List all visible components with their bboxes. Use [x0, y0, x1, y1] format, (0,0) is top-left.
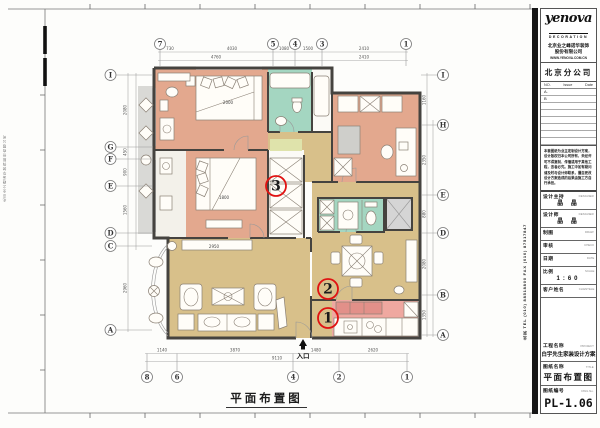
vanity-counter — [338, 202, 358, 229]
grid-bubble-label: A — [107, 325, 114, 334]
disclaimer: 本套图纸为业主定制设计方案，设计版权归本公司所有，未经许可不得复制、传播或用于其… — [541, 146, 596, 192]
chair — [331, 252, 340, 264]
dimension-text: 2410 — [359, 55, 370, 60]
field-label: 设计主持 — [543, 193, 564, 200]
bathtub — [270, 73, 310, 88]
field-label: 日期 — [543, 255, 554, 262]
grid-bubble-label: B — [440, 290, 446, 299]
field-project: 工程名称 PROJECT 白宇先生家装设计方案 — [541, 341, 596, 362]
dimension-text: 730 — [166, 46, 174, 51]
cabinet — [338, 96, 358, 112]
grid-bubble-label: D — [440, 228, 446, 237]
field-label: 比例 — [543, 268, 554, 275]
field-value — [541, 249, 596, 253]
titleblock-fields: 设计主持DESIGNER晶 晶设计师DESIGNER晶 晶制图DRAW审核CHE… — [541, 192, 596, 298]
marker-number-2: 2 — [323, 282, 333, 298]
sink — [276, 117, 287, 126]
drawing-number-label: 图纸编号 — [543, 387, 564, 394]
dimension-text: 450 — [123, 148, 128, 156]
titleblock-divider-bar — [532, 8, 538, 414]
binding-mark — [43, 26, 47, 54]
company-contact-vertical: 北京 TEL (010) 88518800 FAX (010) 87517847 — [522, 110, 528, 340]
side-table — [160, 196, 172, 210]
dresser — [160, 118, 174, 140]
grid-bubble-label: I — [441, 70, 444, 79]
furniture-size-label: 1800 — [219, 195, 230, 200]
chair — [350, 235, 362, 244]
grid-bubble-label: F — [108, 154, 113, 163]
closet-patch — [270, 139, 302, 151]
field-value — [541, 262, 596, 266]
revision-row — [541, 110, 596, 117]
dimension-text: 4030 — [227, 46, 238, 51]
field-value — [541, 293, 596, 297]
company-logo-block: yenova DECORATION 北京业之峰诺华装饰股份有限公司 WWW.YE… — [541, 9, 596, 63]
shower-tub — [314, 76, 329, 116]
grid-bubble-label: I — [109, 70, 112, 79]
monitor — [399, 142, 408, 150]
binding-mark — [43, 58, 47, 86]
grid-bubble-label: 5 — [271, 39, 276, 48]
revision-row — [541, 124, 596, 131]
field-label: 审核 — [543, 242, 554, 249]
grid-bubble-label: 4 — [293, 39, 298, 48]
field-drawing-title: 图纸名称 TITLE 平面布置图 — [541, 362, 596, 386]
field-en-label: DESIGNER — [579, 213, 594, 217]
field-clientele: 客户姓名CLIENTELE — [541, 285, 596, 298]
dimension-text: 1350 — [422, 309, 427, 320]
dimension-text: 2080 — [422, 258, 427, 269]
field-date: 日期DATE — [541, 254, 596, 267]
grid-bubble-label: A — [439, 330, 446, 339]
project-label: 工程名称 — [543, 342, 564, 349]
dimension-text: 1480 — [311, 348, 322, 353]
furniture-size-label: 2000 — [223, 100, 234, 105]
grid-bubble-label: D — [107, 228, 113, 237]
revision-table: NO.IssueDate A.B — [541, 82, 596, 146]
field-en-label: DESIGNER — [579, 195, 594, 199]
bed-bench — [206, 220, 242, 228]
field-label: 客户姓名 — [543, 286, 564, 293]
side-table — [178, 314, 194, 330]
grid-bubble-label: 8 — [145, 372, 150, 381]
dimension-text: 1500 — [303, 46, 314, 51]
stool — [401, 165, 408, 172]
grid-bubble-label: E — [108, 181, 113, 190]
field-value — [541, 236, 596, 240]
desk-chair — [381, 145, 393, 159]
decor — [394, 286, 404, 294]
dimension-text: 880 — [422, 210, 427, 218]
field-en-label: DRAW — [585, 231, 594, 235]
field-label: 设计师 — [543, 211, 559, 218]
grid-bubble-label: G — [108, 142, 114, 151]
balcony-table — [149, 257, 163, 267]
plan-caption-text: 平面布置图 — [226, 393, 307, 408]
project-name: 白宇先生家装设计方案 — [541, 349, 596, 361]
revision-header: NO.IssueDate — [541, 82, 596, 89]
field-value: 1:60 — [541, 275, 596, 284]
grid-bubble-label: 1 — [404, 39, 409, 48]
bath-counter — [158, 73, 190, 81]
dimension-text: 2410 — [359, 46, 370, 51]
field-label: 制图 — [543, 229, 554, 236]
living-balcony — [149, 244, 169, 336]
grid-bubble-label: 7 — [158, 39, 163, 48]
field-designer: 设计师DESIGNER晶 晶 — [541, 210, 596, 228]
disclaimer-line: 行承担。 — [544, 181, 593, 186]
sheet-edge-note: 北京业之峰诺华装饰股份有限公司 — [1, 32, 6, 202]
dimension-text: 2620 — [368, 348, 379, 353]
revision-row — [541, 103, 596, 110]
side-table — [258, 314, 274, 330]
field-en-label: DATE — [587, 257, 594, 261]
dimension-text: 2350 — [422, 154, 427, 165]
branch-name: 北京分公司 — [541, 63, 596, 82]
dimension-text: 1560 — [123, 204, 128, 215]
company-logo: yenova — [543, 13, 594, 25]
grid-bubble-label: E — [440, 190, 445, 199]
revision-row — [541, 138, 596, 145]
chair — [374, 252, 383, 264]
piano — [338, 126, 360, 154]
toilet — [160, 100, 168, 111]
revision-header-cell: Issue — [563, 83, 572, 87]
grid-bubble-label: 6 — [175, 372, 180, 381]
entrance-arrow — [299, 339, 307, 346]
cabinet — [382, 96, 402, 112]
drawing-title: 平面布置图 — [541, 370, 596, 385]
vanity — [160, 158, 172, 174]
grid-bubble-label: 4 — [291, 372, 296, 381]
chair — [350, 278, 362, 287]
field-value: 晶 晶 — [541, 218, 596, 227]
drawing-sheet: 7543186421IGFEDCAIHEDBA73040301080150024… — [0, 0, 600, 428]
entrance-arrow-stem — [301, 346, 305, 350]
field-check: 审核CHECK — [541, 241, 596, 254]
dimension-text: 9110 — [272, 356, 283, 361]
upper-counter — [336, 302, 382, 314]
marker-number-3: 3 — [271, 179, 281, 195]
entrance-label: 入口 — [296, 352, 310, 360]
dimension-text: 1160 — [422, 94, 427, 105]
dimension-text: 1080 — [279, 46, 290, 51]
company-name-line: 股份有限公司 — [543, 49, 594, 55]
floor-plan-canvas: 7543186421IGFEDCAIHEDBA73040301080150024… — [0, 0, 600, 428]
revision-row — [541, 131, 596, 138]
dimension-text: 4760 — [211, 55, 222, 60]
dimension-text: 2080 — [123, 104, 128, 115]
field-en-label: SCALE — [585, 270, 594, 274]
grid-bubble-label: C — [108, 241, 114, 250]
dimension-text: 2960 — [123, 282, 128, 293]
field-drawing-number: 图纸编号 DWG No. PL-1.06 — [541, 386, 596, 413]
plan-caption: 平面布置图 — [0, 389, 533, 407]
sink — [166, 87, 178, 97]
dimension-text: 900 — [123, 168, 128, 176]
dimension-text: 1140 — [157, 348, 168, 353]
grid-bubble-label: 2 — [337, 372, 342, 381]
toilet — [366, 211, 376, 225]
sideboard — [406, 240, 417, 282]
disclaimer-line: 程，违者必究。施工中如有疑问 — [544, 165, 593, 170]
furniture-size-label: 2950 — [209, 244, 220, 249]
kitchen-fixtures — [334, 302, 418, 336]
revision-row — [541, 117, 596, 124]
drawing-number: PL-1.06 — [541, 394, 596, 413]
field-scale: 比例SCALE1:60 — [541, 267, 596, 285]
company-logo-sub: DECORATION — [549, 33, 588, 39]
revision-header-cell: Date — [585, 83, 593, 87]
plant — [168, 242, 177, 251]
field-value: 晶 晶 — [541, 200, 596, 209]
revision-row: A. — [541, 89, 596, 96]
drawing-title-label: 图纸名称 — [543, 363, 564, 370]
title-block: yenova DECORATION 北京业之峰诺华装饰股份有限公司 WWW.YE… — [540, 8, 597, 414]
grid-bubble-label: 3 — [320, 39, 325, 48]
marker-number-1: 1 — [323, 311, 333, 327]
field-designer: 设计主持DESIGNER晶 晶 — [541, 192, 596, 210]
company-contact: WWW.YENOVA.COM.CN — [543, 56, 594, 60]
balcony-table — [149, 313, 163, 323]
revision-header-cell: NO. — [544, 83, 551, 87]
field-en-label: CHECK — [584, 244, 594, 248]
company-name-lines: 北京业之峰诺华装饰股份有限公司 — [543, 43, 594, 55]
grid-bubble-label: H — [440, 120, 447, 129]
revision-row: B — [541, 96, 596, 103]
field-en-label: CLIENTELE — [578, 288, 594, 292]
field-draw: 制图DRAW — [541, 228, 596, 241]
dimension-text: 3870 — [230, 348, 241, 353]
grid-bubble-label: 1 — [405, 372, 410, 381]
